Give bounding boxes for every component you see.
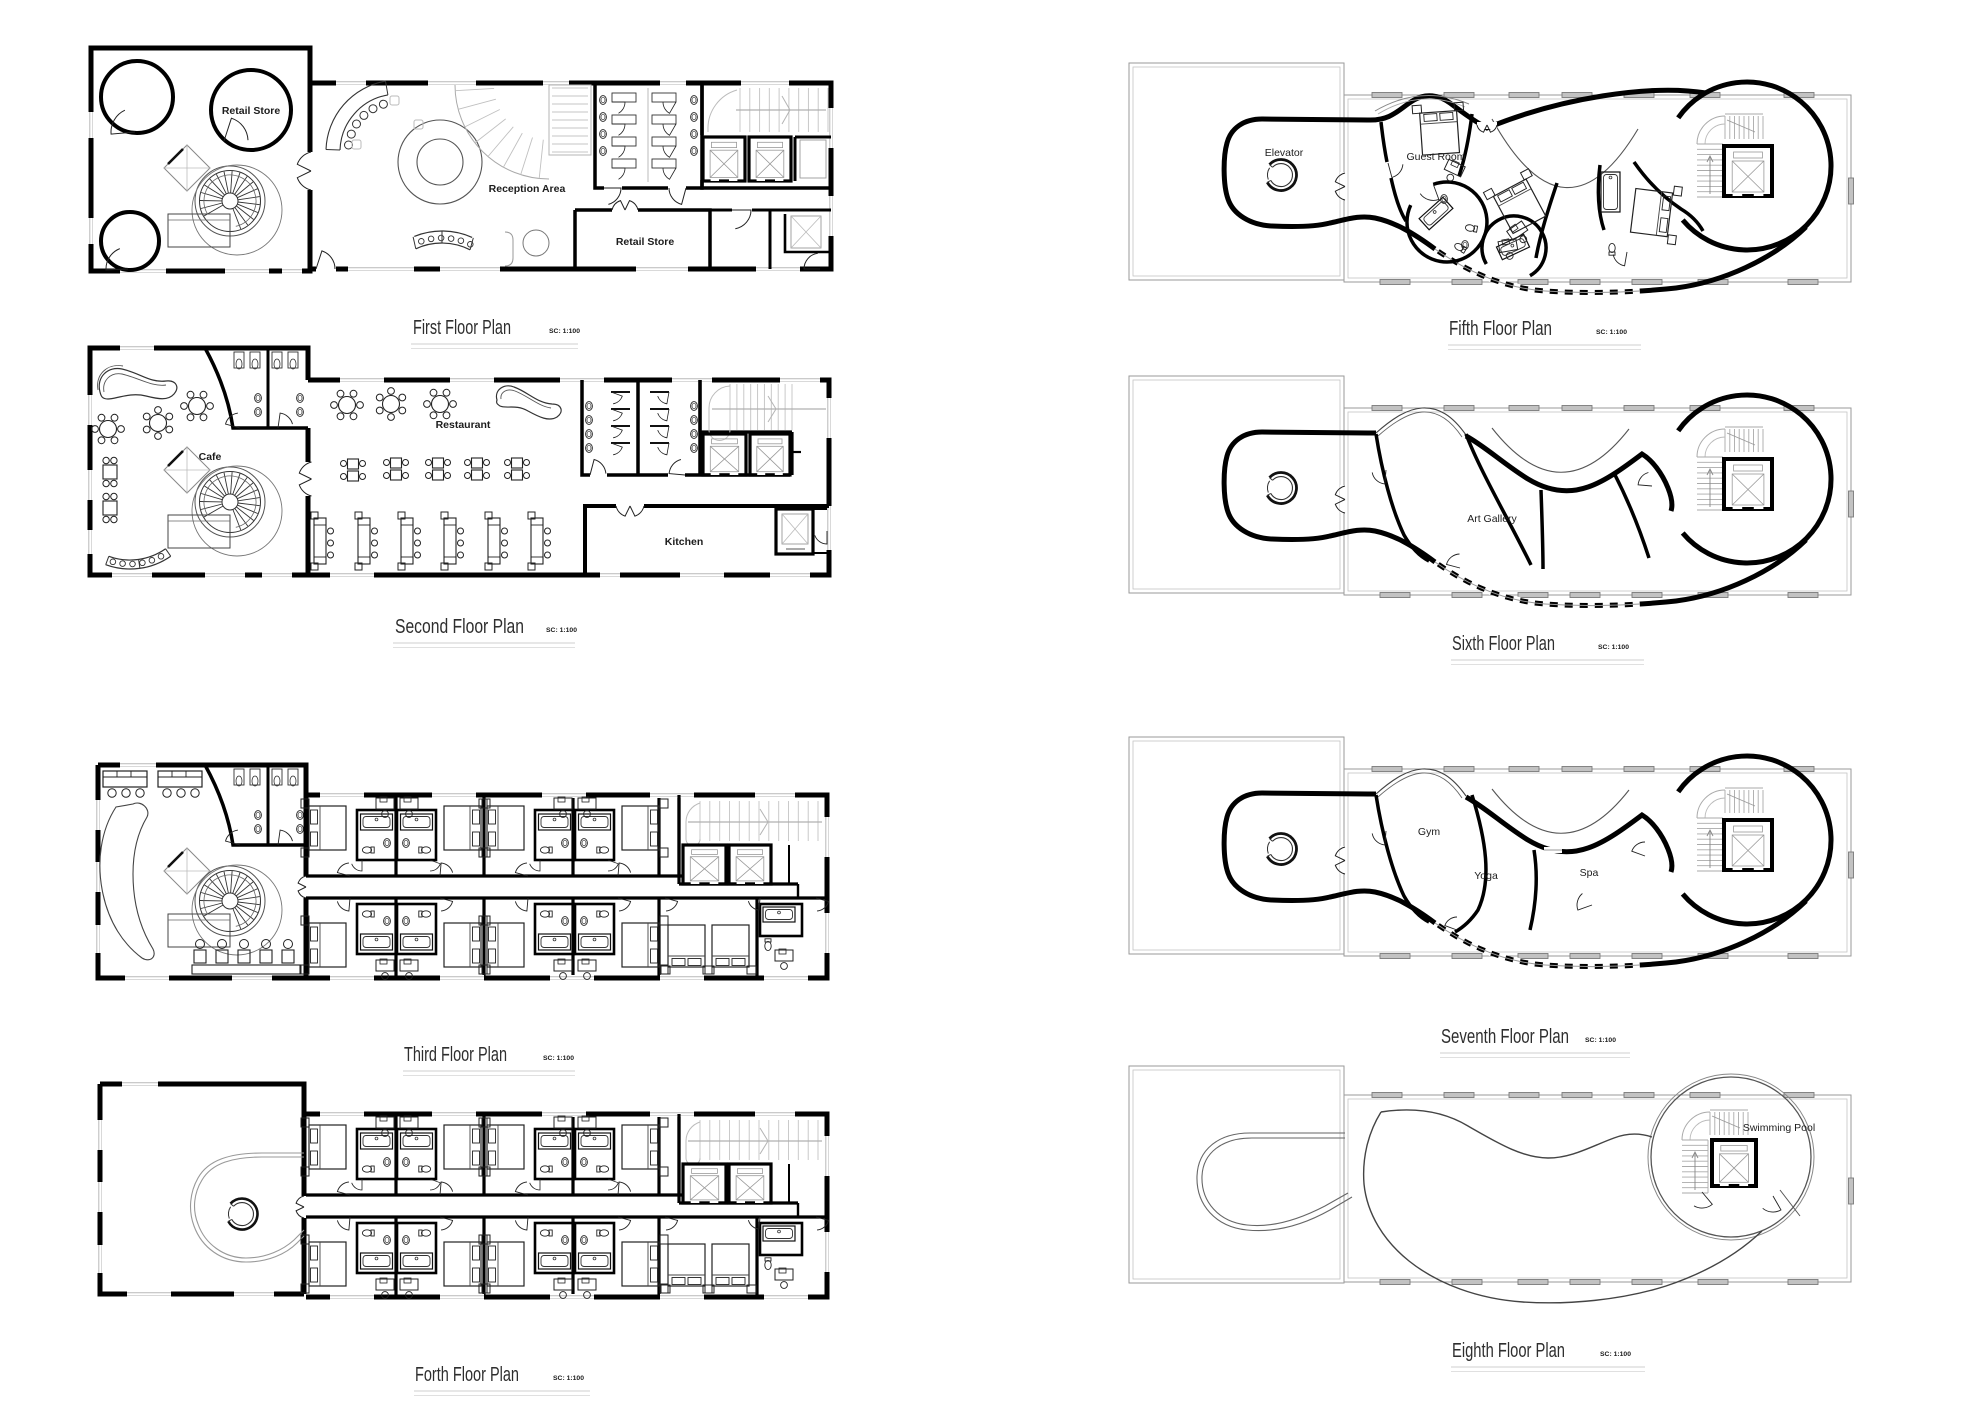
svg-text:Forth Floor Plan: Forth Floor Plan [415,1364,519,1386]
svg-text:Sixth Floor Plan: Sixth Floor Plan [1452,633,1555,655]
svg-text:Yoga: Yoga [1474,870,1498,882]
svg-text:SC: 1:100: SC: 1:100 [553,1375,584,1382]
svg-text:Second Floor Plan: Second Floor Plan [395,616,524,638]
svg-text:Kitchen: Kitchen [665,536,704,548]
svg-text:Art Gallery: Art Gallery [1467,513,1517,525]
svg-text:Spa: Spa [1580,867,1599,879]
svg-text:Swimming Pool: Swimming Pool [1743,1122,1815,1134]
svg-text:Third Floor Plan: Third Floor Plan [404,1044,507,1066]
svg-text:Eighth Floor Plan: Eighth Floor Plan [1452,1340,1565,1362]
svg-text:Seventh Floor Plan: Seventh Floor Plan [1441,1026,1569,1048]
svg-text:SC: 1:100: SC: 1:100 [1598,644,1629,651]
svg-text:SC: 1:100: SC: 1:100 [543,1055,574,1062]
svg-text:Reception Area: Reception Area [489,183,566,195]
svg-text:Restaurant: Restaurant [436,419,491,431]
svg-text:Cafe: Cafe [199,451,222,463]
svg-text:SC: 1:100: SC: 1:100 [1596,329,1627,336]
svg-text:Retail Store: Retail Store [222,105,281,117]
svg-text:First Floor Plan: First Floor Plan [413,317,511,339]
svg-text:SC: 1:100: SC: 1:100 [1600,1351,1631,1358]
svg-text:SC: 1:100: SC: 1:100 [549,328,580,335]
svg-text:SC: 1:100: SC: 1:100 [1585,1037,1616,1044]
svg-text:SC: 1:100: SC: 1:100 [546,627,577,634]
svg-text:Fifth Floor Plan: Fifth Floor Plan [1449,318,1552,340]
svg-text:Retail Store: Retail Store [616,236,675,248]
svg-text:Gym: Gym [1418,826,1440,838]
svg-text:Elevator: Elevator [1265,147,1304,159]
